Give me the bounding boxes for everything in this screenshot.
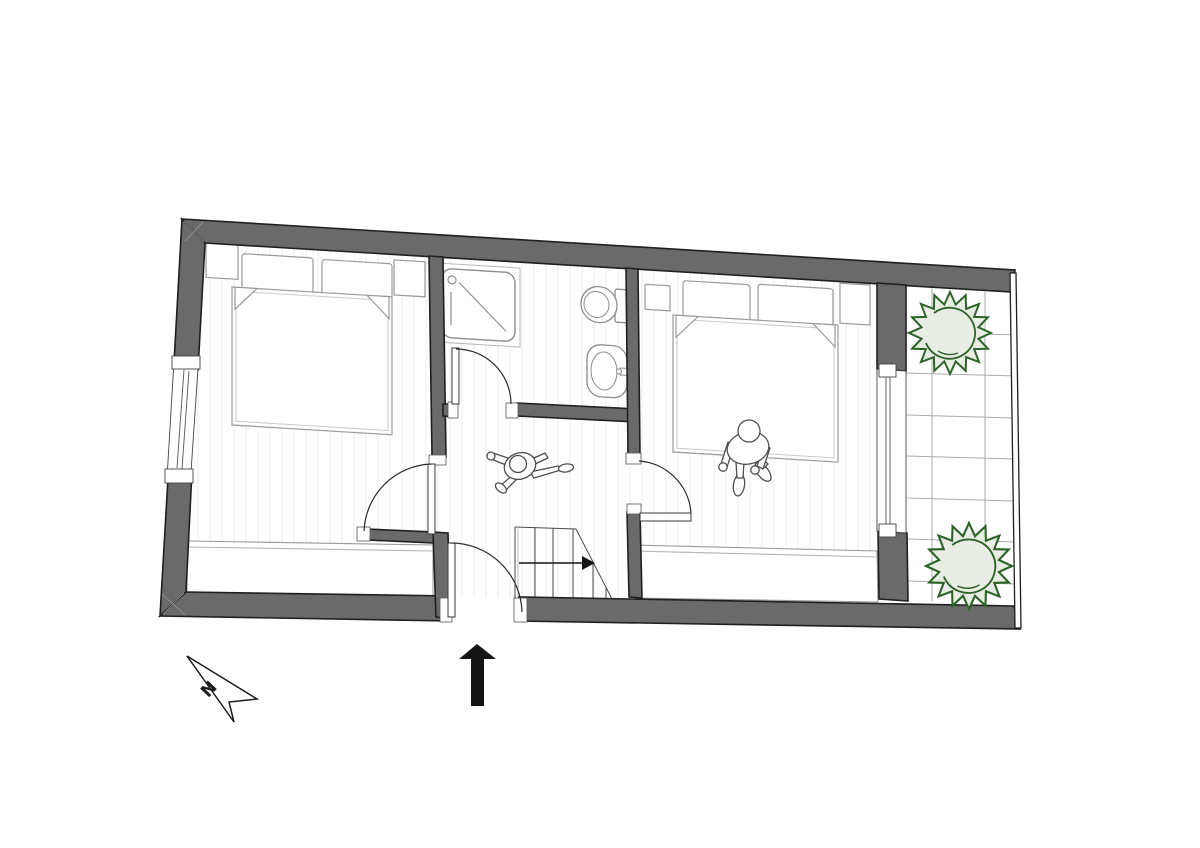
nightstand bbox=[645, 284, 670, 311]
window-jamb bbox=[165, 469, 193, 483]
wall-bedroom-left-east bbox=[429, 256, 446, 457]
plant-balcony-top bbox=[909, 292, 991, 374]
nightstand bbox=[394, 260, 425, 297]
wall-balcony-west-upper bbox=[877, 283, 906, 371]
door-jamb bbox=[879, 364, 896, 377]
wardrobe-bedroom-right bbox=[634, 545, 878, 602]
wall-bottom-left bbox=[160, 592, 452, 621]
blanket bbox=[232, 287, 392, 435]
wall-bathroom-east bbox=[626, 268, 640, 456]
pillow bbox=[683, 281, 750, 321]
wall-bedroom-left-south-stub bbox=[366, 529, 435, 543]
floor-plan-page: N bbox=[0, 0, 1200, 848]
entry-arrow bbox=[459, 644, 496, 706]
window-jamb bbox=[172, 356, 200, 369]
wardrobe-bedroom-left bbox=[187, 541, 433, 596]
wall-bedroom-right-west-lower bbox=[627, 512, 642, 598]
balcony-glazed-door bbox=[877, 364, 906, 537]
nightstand bbox=[840, 283, 870, 325]
nightstand bbox=[206, 240, 238, 279]
pillow bbox=[758, 284, 833, 326]
shower bbox=[437, 263, 520, 347]
floor-plan-svg: N bbox=[0, 0, 1200, 848]
north-arrow: N bbox=[187, 656, 257, 722]
wall-balcony-west-lower bbox=[878, 531, 908, 601]
washbasin bbox=[587, 344, 630, 399]
plant-balcony-bottom bbox=[926, 523, 1012, 609]
toilet bbox=[581, 286, 627, 325]
door-jamb bbox=[879, 524, 896, 537]
